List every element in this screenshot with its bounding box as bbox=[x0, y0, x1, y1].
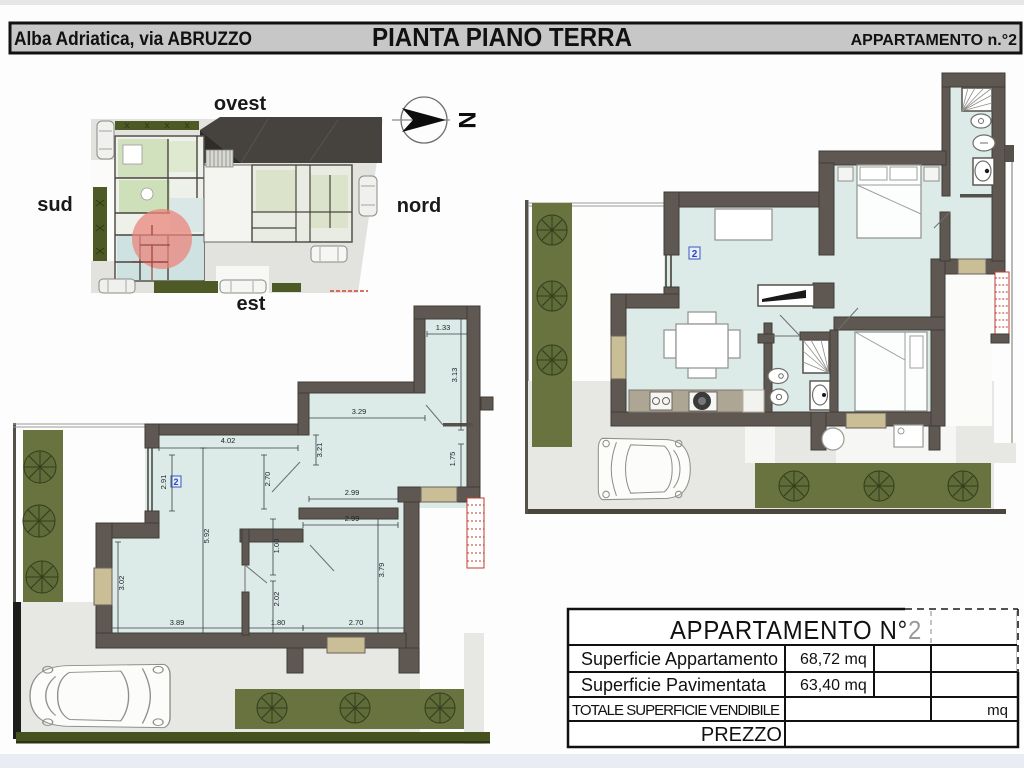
svg-text:mq: mq bbox=[987, 702, 1008, 719]
svg-text:APPARTAMENTO N°2: APPARTAMENTO N°2 bbox=[670, 615, 922, 645]
svg-text:2.70: 2.70 bbox=[349, 618, 364, 627]
svg-text:2: 2 bbox=[692, 249, 698, 260]
svg-text:PIANTA PIANO TERRA: PIANTA PIANO TERRA bbox=[372, 22, 632, 52]
svg-text:4.02: 4.02 bbox=[221, 436, 236, 445]
svg-text:3.13: 3.13 bbox=[450, 368, 459, 383]
svg-text:PREZZO: PREZZO bbox=[701, 724, 782, 746]
svg-text:APPARTAMENTO n.°2: APPARTAMENTO n.°2 bbox=[851, 32, 1018, 49]
svg-text:2.99: 2.99 bbox=[345, 488, 360, 497]
svg-text:Superficie Pavimentata: Superficie Pavimentata bbox=[581, 675, 767, 695]
svg-text:est: est bbox=[237, 293, 266, 315]
svg-text:2.91: 2.91 bbox=[159, 475, 168, 490]
svg-text:Alba Adriatica, via ABRUZZO: Alba Adriatica, via ABRUZZO bbox=[14, 29, 252, 50]
svg-text:nord: nord bbox=[397, 195, 441, 217]
svg-text:3.29: 3.29 bbox=[352, 407, 367, 416]
svg-text:1.75: 1.75 bbox=[448, 452, 457, 467]
svg-text:63,40 mq: 63,40 mq bbox=[800, 677, 867, 694]
svg-text:N: N bbox=[453, 111, 480, 128]
svg-text:2: 2 bbox=[173, 477, 178, 487]
svg-text:TOTALE SUPERFICIE VENDIBILE: TOTALE SUPERFICIE VENDIBILE bbox=[572, 702, 780, 719]
svg-text:sud: sud bbox=[37, 194, 73, 216]
svg-text:1.33: 1.33 bbox=[436, 323, 451, 332]
svg-text:3.89: 3.89 bbox=[170, 618, 185, 627]
svg-text:2.99: 2.99 bbox=[345, 514, 360, 523]
svg-text:Superficie Appartamento: Superficie Appartamento bbox=[581, 649, 778, 669]
svg-text:ovest: ovest bbox=[214, 93, 267, 115]
svg-text:68,72 mq: 68,72 mq bbox=[800, 651, 867, 668]
